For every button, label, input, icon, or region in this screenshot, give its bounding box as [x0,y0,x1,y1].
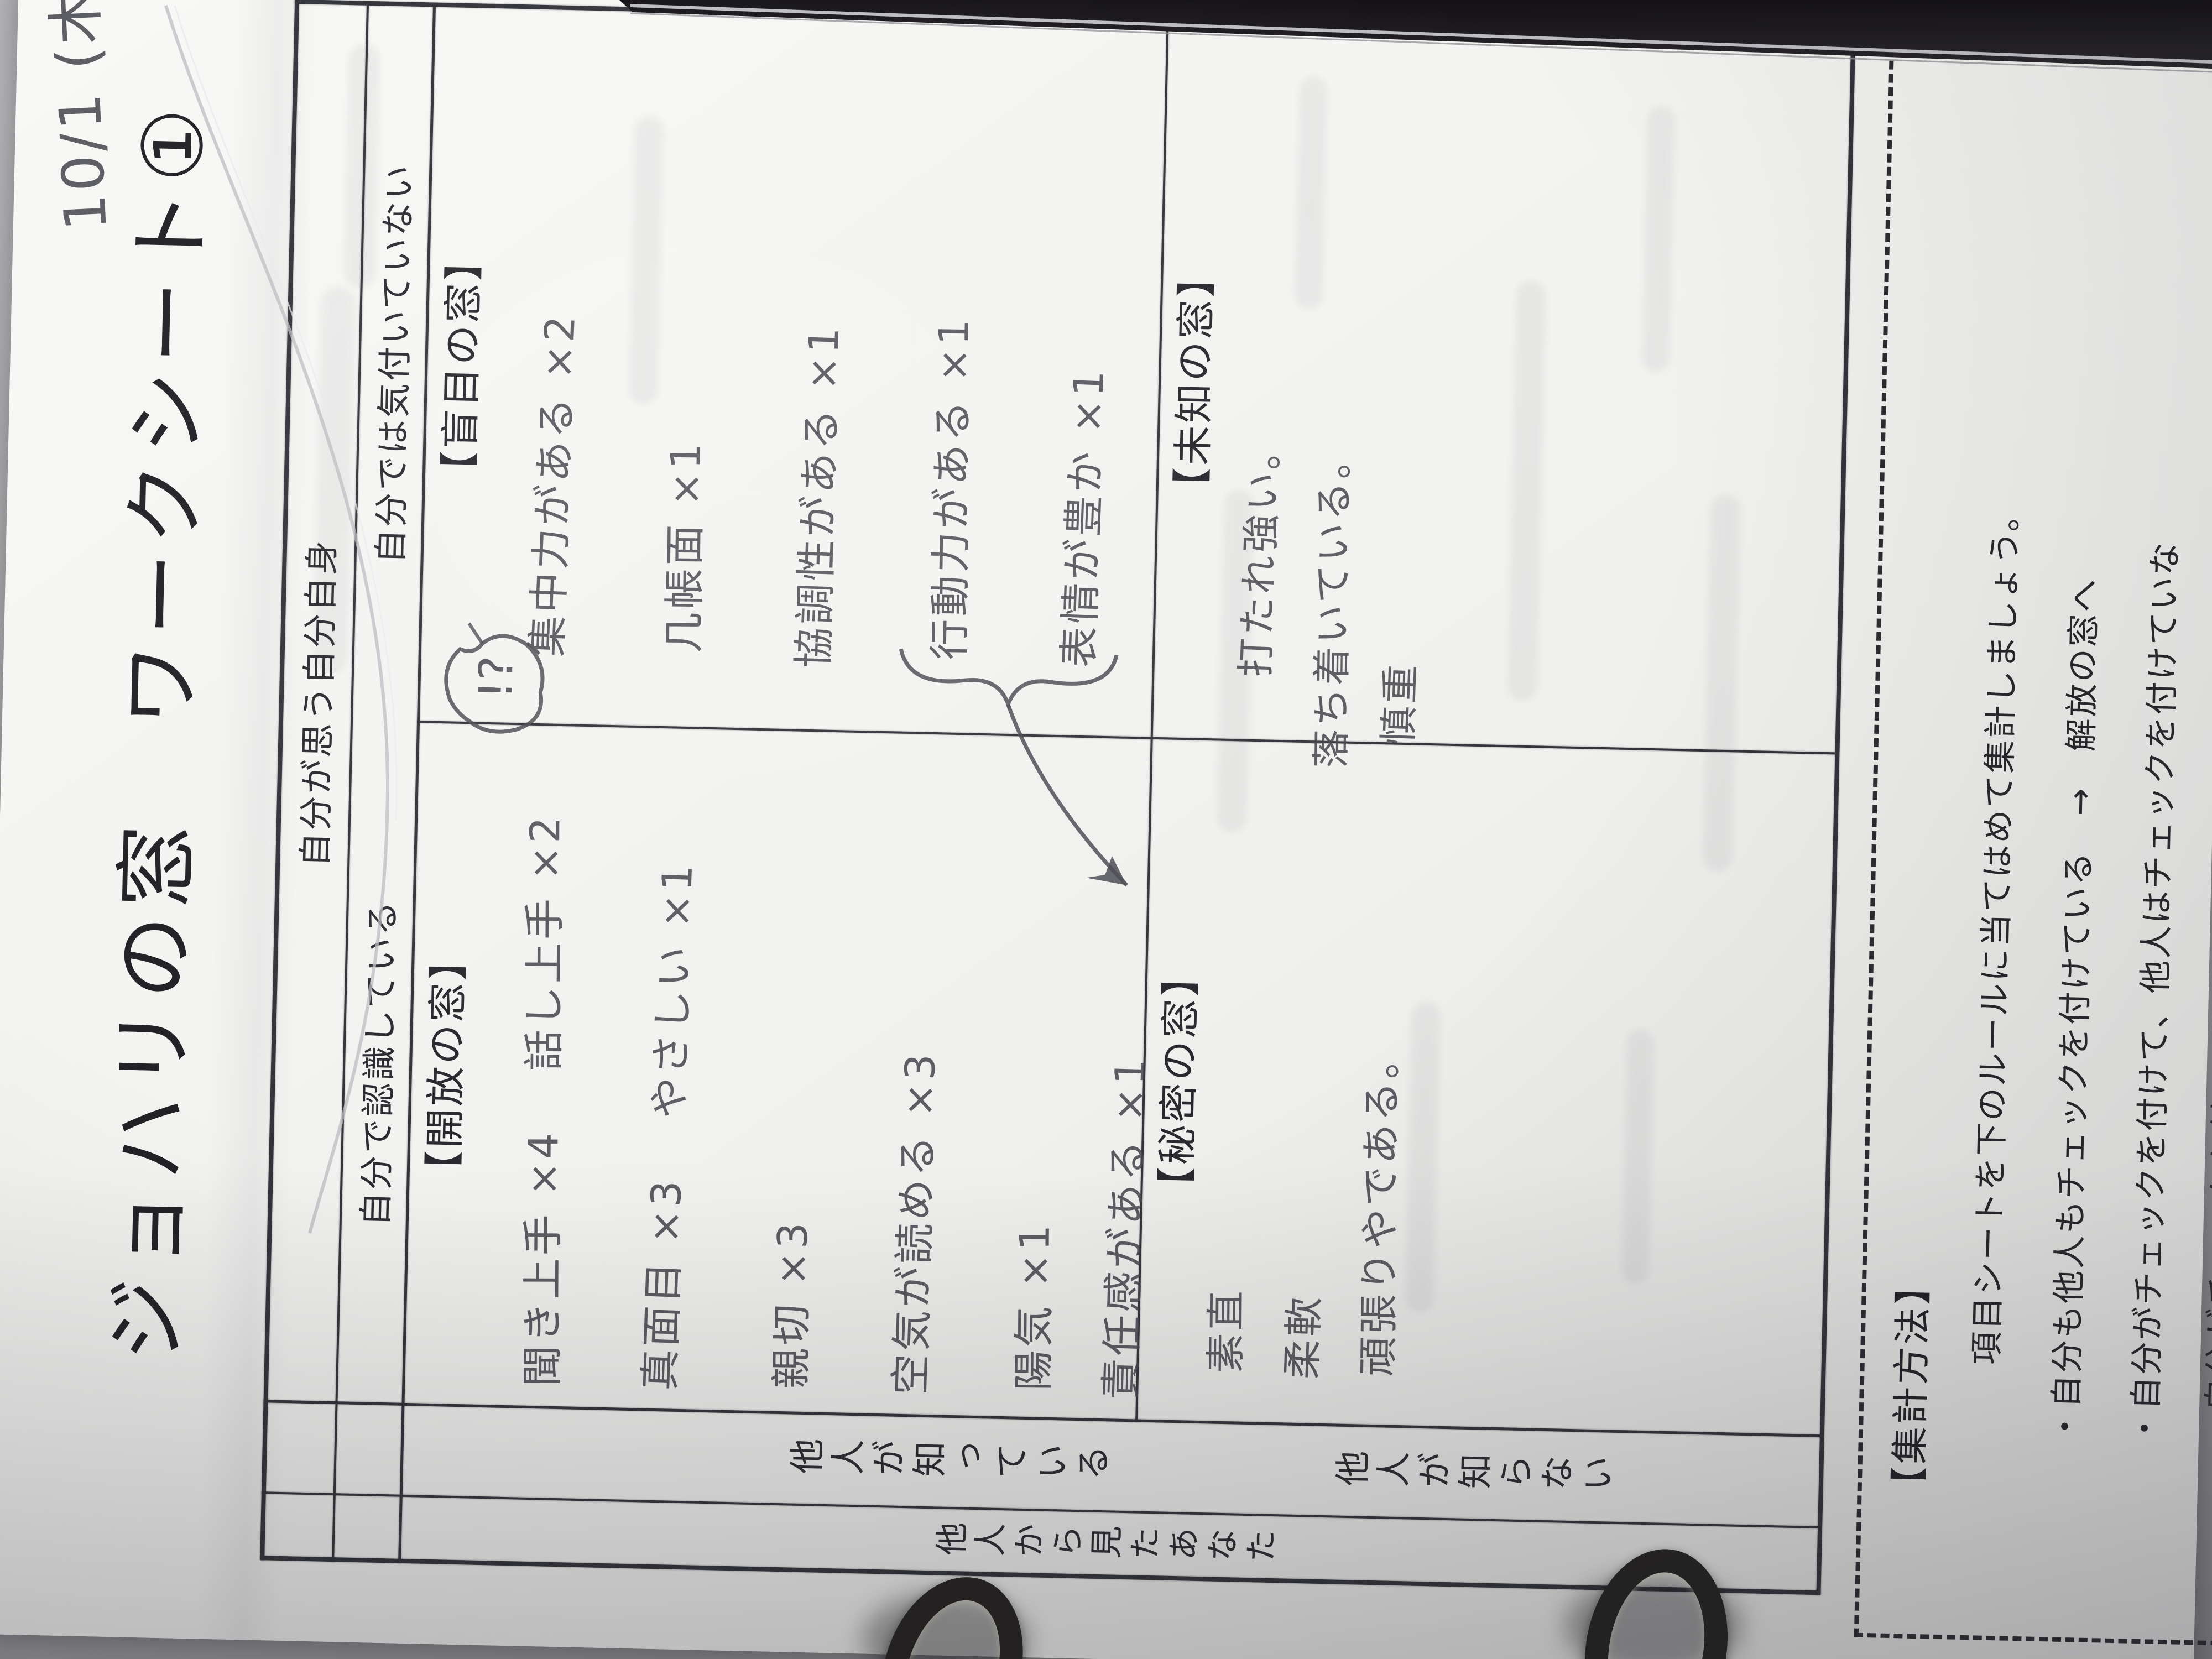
under-sheet-edge [0,0,2212,1659]
photo-frame: 10/1 (木) ジョハリの窓 ワークシート① 自分が思う自分自身 [0,0,2212,1659]
